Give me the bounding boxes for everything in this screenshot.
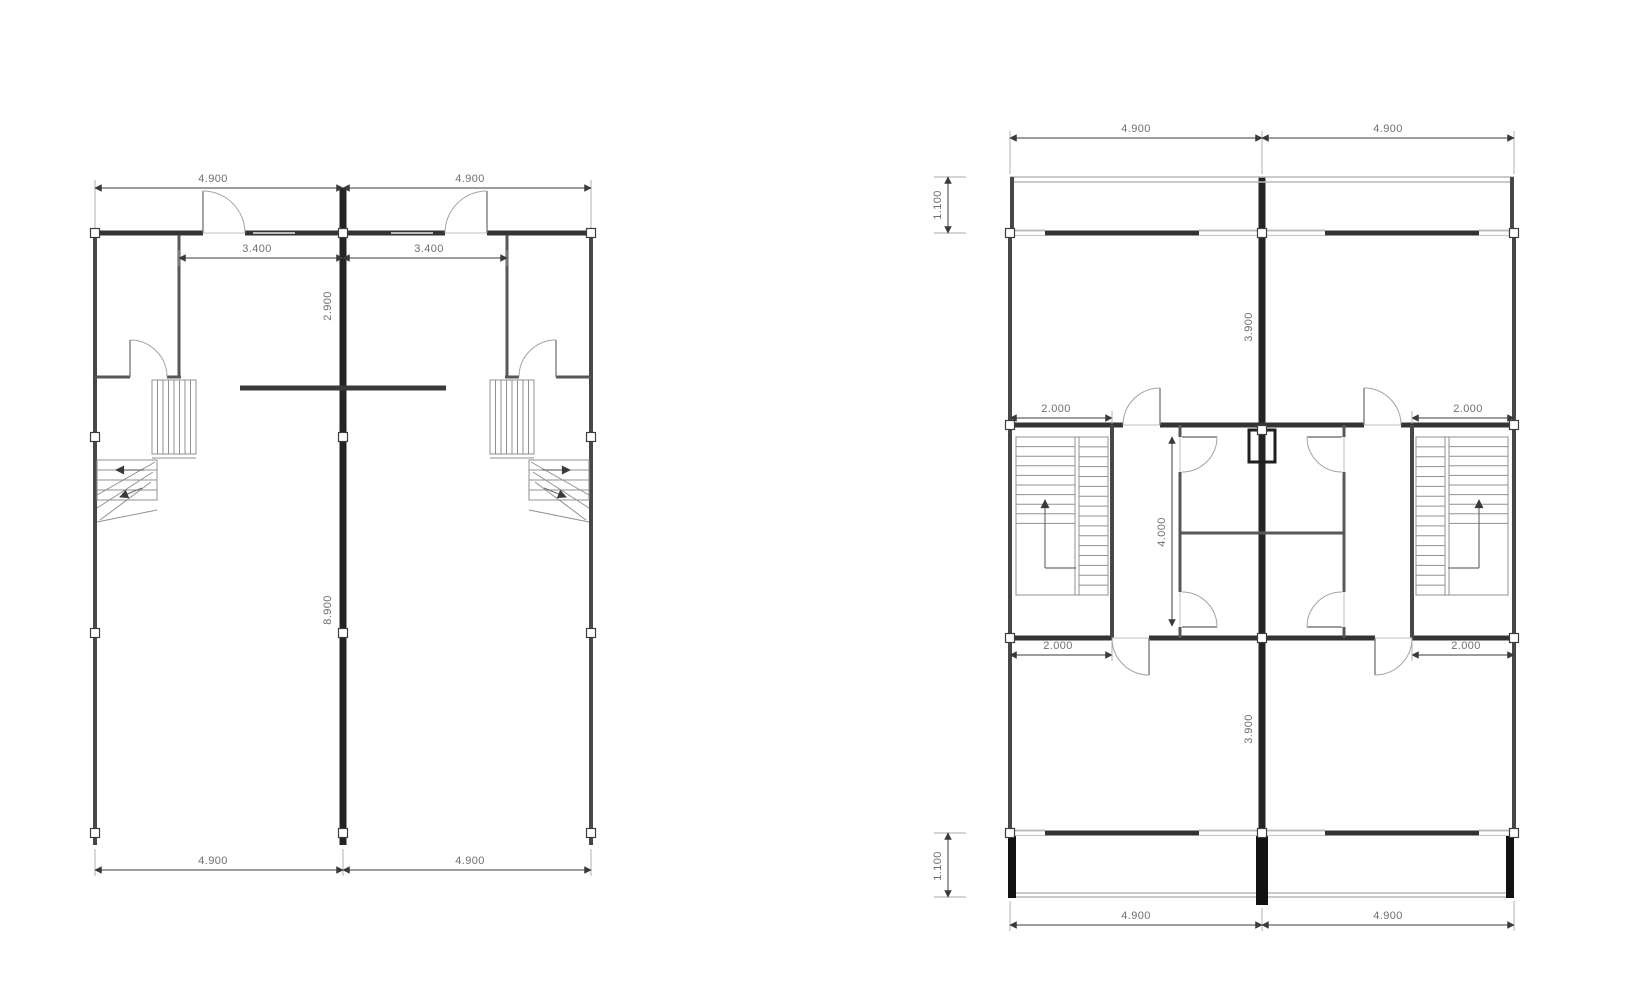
column-marker — [339, 629, 348, 638]
dim-label-bottom-left: 4.900 — [198, 855, 228, 867]
dim-label-front-stair-left: 2.000 — [1041, 403, 1071, 415]
ground-floor-plan: 4.900 4.900 3.400 3.400 2.900 8.900 4.90… — [91, 173, 596, 876]
stair-treads — [529, 470, 589, 490]
uf-stair-right — [1416, 437, 1508, 595]
column-marker — [1510, 229, 1519, 238]
dim-label-bottom-left: 4.900 — [1121, 910, 1151, 922]
column-marker — [91, 433, 100, 442]
column-marker — [587, 629, 596, 638]
dim-label-bottom-right: 4.900 — [1373, 910, 1403, 922]
column-marker — [1258, 426, 1267, 435]
stair-treads — [1079, 447, 1108, 585]
dim-label-rear-stair-left: 2.000 — [1043, 640, 1073, 652]
column-marker — [1258, 229, 1267, 238]
column-marker — [587, 433, 596, 442]
solid-wall — [1008, 836, 1016, 898]
column-marker — [1006, 829, 1015, 838]
dim-label-rear-room-depth: 3.900 — [1243, 714, 1255, 744]
column-marker — [1258, 829, 1267, 838]
stair-treads — [158, 380, 191, 454]
column-marker — [339, 433, 348, 442]
dim-label-core-depth: 4.000 — [1156, 517, 1168, 547]
dim-label-room-left: 3.400 — [242, 243, 272, 255]
column-marker — [1006, 421, 1015, 430]
column-marker — [1006, 229, 1015, 238]
dim-label-front-room-depth: 3.900 — [1243, 312, 1255, 342]
upper-floor-plan: 4.900 4.900 1.100 3.900 2.000 2.000 4.00… — [932, 123, 1519, 931]
uf-walls — [1008, 177, 1514, 905]
dim-label-room-right: 3.400 — [414, 243, 444, 255]
stair-treads — [1416, 447, 1445, 585]
column-marker — [339, 829, 348, 838]
uf-stair-left — [1016, 437, 1108, 595]
dim-label-top-left: 4.900 — [1121, 123, 1151, 135]
stair-direction-arrow — [544, 488, 566, 497]
column-marker — [1006, 634, 1015, 643]
column-marker — [1258, 634, 1267, 643]
gf-walls — [95, 188, 591, 845]
gf-stair-left — [97, 380, 196, 522]
dim-label-top-right: 4.900 — [1373, 123, 1403, 135]
column-marker — [587, 229, 596, 238]
dim-label-front-balcony: 1.100 — [932, 190, 944, 220]
gf-stair-right — [490, 380, 589, 522]
column-marker — [339, 229, 348, 238]
solid-wall — [1506, 836, 1514, 898]
dim-label-front-stair-right: 2.000 — [1453, 403, 1483, 415]
dim-label-rear-stair-right: 2.000 — [1451, 640, 1481, 652]
column-marker — [1510, 634, 1519, 643]
dim-label-hall-depth: 8.900 — [322, 595, 334, 625]
dim-label-front-depth: 2.900 — [322, 291, 334, 321]
solid-wall — [1256, 836, 1268, 905]
dim-label-top-right: 4.900 — [455, 173, 485, 185]
stair-direction-arrow — [120, 488, 142, 497]
floor-plan-canvas: 4.900 4.900 3.400 3.400 2.900 8.900 4.90… — [0, 0, 1632, 1004]
column-marker — [1510, 829, 1519, 838]
column-marker — [91, 629, 100, 638]
column-marker — [91, 229, 100, 238]
column-marker — [91, 829, 100, 838]
dim-label-top-left: 4.900 — [198, 173, 228, 185]
column-marker — [1510, 421, 1519, 430]
dim-label-rear-balcony: 1.100 — [932, 851, 944, 881]
stair-treads — [496, 380, 529, 454]
uf-dimensions: 4.900 4.900 1.100 3.900 2.000 2.000 4.00… — [932, 123, 1514, 931]
column-marker — [587, 829, 596, 838]
stair-treads — [97, 470, 157, 490]
floor-plans-drawing: 4.900 4.900 3.400 3.400 2.900 8.900 4.90… — [0, 0, 1632, 1004]
dim-label-bottom-right: 4.900 — [455, 855, 485, 867]
